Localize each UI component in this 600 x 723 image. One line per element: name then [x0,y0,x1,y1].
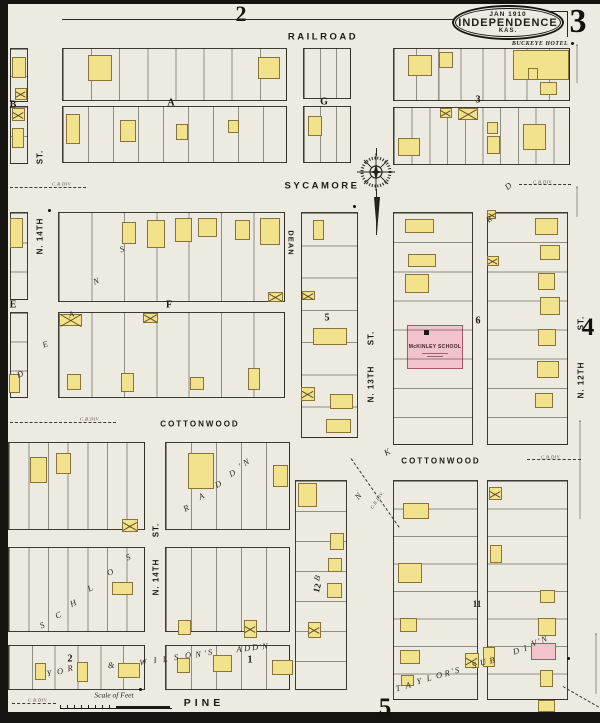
buckeye-hotel-label: BUCKEYE HOTEL [512,41,568,47]
scattered-addition-letter: K [382,446,392,457]
building [88,55,112,81]
outbuilding [244,620,257,638]
building [12,128,24,148]
outbuilding [302,291,315,300]
building [258,57,280,79]
building [272,660,293,675]
street-label: ST. [577,316,586,331]
building [213,655,232,672]
scattered-addition-letter: D [252,642,259,652]
survey-dot [567,657,570,660]
block-number-label: 11 [473,599,482,609]
building [490,545,502,563]
block-number-label: 3 [476,95,481,106]
scattered-addition-letter: N [194,649,201,660]
sheet-edge-bottom [0,712,600,723]
outbuilding [489,487,502,500]
building [298,483,317,507]
cartouche-inner-ring [455,8,561,37]
boundary-dash-line [577,187,578,217]
building [35,663,46,680]
building [528,68,538,80]
boundary-dash-line [577,45,578,83]
building [538,329,556,346]
building [190,377,204,390]
city-block [487,480,568,700]
outbuilding [440,108,452,118]
block-number-label: G [320,97,328,108]
compass-rose-icon [356,152,396,192]
building [408,55,432,76]
map-rule-line [567,11,568,37]
building [147,220,165,248]
building [398,563,422,583]
city-block [165,442,290,530]
building [398,138,420,156]
building [175,218,192,242]
building [400,650,420,664]
street-label: N. 14TH [36,218,45,255]
boundary-dash-line [563,686,600,710]
scattered-addition-letter: N [352,491,363,502]
building [537,361,559,378]
map-rule-line [376,189,377,235]
building [235,220,250,240]
building [538,618,556,636]
building [313,328,347,345]
block-number-label: A [167,98,174,109]
section-line-marker [374,197,380,233]
map-rule-line [376,148,377,156]
scale-bar-ticks [60,705,115,709]
outbuilding [268,292,283,302]
street-label: COTTONWOOD [160,420,239,429]
building [405,274,429,293]
map-rule-line [62,19,453,20]
building [538,700,555,712]
building [405,219,434,233]
boundary-dash-line [580,421,581,519]
building [540,590,555,603]
sheet-edge-top [0,0,600,4]
boundary-dash-line [12,703,56,704]
building [112,582,133,595]
scale-bar-segment [116,706,170,709]
city-block [8,442,145,530]
survey-dot [139,688,142,691]
block-number-label: E [10,300,17,311]
survey-dot [571,42,574,45]
building [12,57,26,78]
building [177,658,190,673]
block-number-label: F [166,300,172,311]
building [513,50,569,80]
block-number-label: 5 [325,313,330,324]
map-canvas: JAN 1910 INDEPENDENCE KAS. 3 2 4 5 McKIN… [0,0,600,723]
scattered-addition-letter: N [262,641,269,651]
street-label: DEAN [287,230,296,255]
outbuilding [458,108,478,120]
scattered-addition-letter: I [153,655,157,665]
scattered-addition-letter: D [502,180,513,192]
building [30,457,47,483]
street-label: RAILROAD [288,32,358,43]
building [308,116,322,136]
building [118,663,140,678]
adjacent-sheet-top: 2 [236,1,247,27]
building [326,419,351,433]
outbuilding [308,622,321,638]
building [56,453,71,474]
scattered-addition-letter: O [184,650,191,661]
building [66,114,80,144]
building [67,374,81,390]
building [330,394,353,409]
building [228,120,239,133]
street-label: N. 13TH [367,366,376,403]
street-label: N. 12TH [577,362,586,399]
outbuilding [143,313,158,323]
city-block [58,212,285,302]
building [439,52,453,68]
building [540,82,557,95]
building [403,503,429,519]
outbuilding [301,387,315,401]
outbuilding [487,256,499,266]
building [487,136,500,154]
building [523,124,546,150]
scattered-addition-letter: & [107,660,115,671]
boundary-dash-line [527,459,581,460]
city-block [303,48,351,99]
city-boundary-label: C.B.DIV. [28,698,48,703]
street-label: ST. [152,523,161,538]
building [330,533,344,550]
street-label: SYCAMORE [285,181,360,192]
building [535,393,553,408]
sheet-number: 3 [570,3,587,41]
block-number-label: 1 [248,655,253,666]
city-block [62,106,287,163]
building [540,245,560,260]
building [248,368,260,390]
building [313,220,324,240]
survey-dot [353,205,356,208]
building [273,465,288,487]
sheet-edge-left [0,0,8,723]
street-label: N. 14TH [152,559,161,596]
building [327,583,342,598]
building [260,218,280,245]
building [121,373,134,392]
building [178,620,191,635]
street-label: COTTONWOOD [401,457,480,466]
scattered-addition-letter: A [236,644,242,654]
scattered-addition-letter: W [139,657,147,668]
boundary-dash-line [10,187,86,188]
block-number-label: B [10,100,17,111]
scattered-addition-letter: D [244,643,251,653]
scale-of-feet-label: Scale of Feet [94,691,133,700]
boundary-dash-line [596,634,597,694]
boundary-dash-line [10,422,116,423]
building [540,297,560,315]
building [10,218,23,248]
outbuilding [15,88,27,100]
city-boundary-label: C.B.DIV. [80,417,100,422]
city-block [393,212,473,445]
building [122,222,136,244]
block-number-label: 6 [476,316,481,327]
street-label: PINE [184,697,225,709]
building [328,558,342,572]
building [198,218,217,237]
city-boundary-label: C.B.DIV. [52,182,72,187]
building [487,122,498,134]
street-label: ST. [367,331,376,346]
adjacent-sheet-bottom: 5 [379,694,392,722]
building [540,670,553,687]
map-title-cartouche: JAN 1910 INDEPENDENCE KAS. [452,5,564,40]
scattered-addition-letter: L [162,654,168,665]
building [408,254,436,267]
building [188,453,214,489]
outbuilding [122,519,138,532]
building [538,273,555,290]
boundary-dash-line [519,184,571,185]
building [535,218,558,235]
building [77,662,88,682]
street-label: ST. [36,150,45,165]
scattered-addition-letter: E [41,338,49,349]
city-boundary-label: C.B.DIV. [369,490,385,509]
building [400,618,417,632]
building [176,124,188,140]
building [120,120,136,142]
scale-bar [60,703,172,711]
survey-dot [48,209,51,212]
